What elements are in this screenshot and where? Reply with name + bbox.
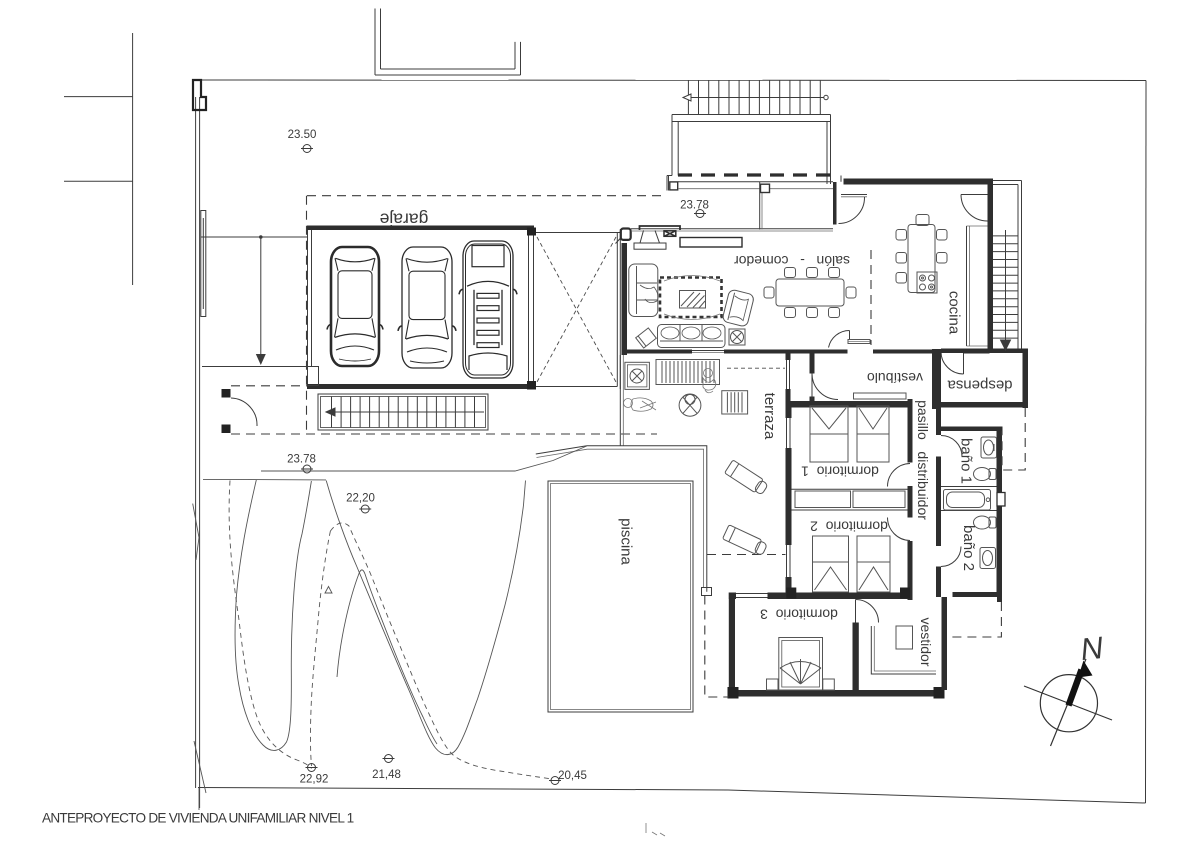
svg-text:22,92: 22,92 — [300, 774, 329, 786]
svg-text:pasillo distribuidor: pasillo distribuidor — [915, 400, 931, 520]
svg-text:20,45: 20,45 — [558, 770, 587, 782]
svg-text:ANTEPROYECTO DE VIVIENDA UNIFA: ANTEPROYECTO DE VIVIENDA UNIFAMILIAR NIV… — [42, 811, 354, 826]
svg-text:baño 1: baño 1 — [958, 438, 975, 484]
svg-text:vestidor: vestidor — [918, 617, 934, 666]
svg-text:N: N — [1079, 630, 1106, 667]
svg-text:23.78: 23.78 — [680, 200, 709, 212]
svg-text:23.78: 23.78 — [287, 454, 316, 466]
svg-text:dormitorio 2: dormitorio 2 — [810, 519, 888, 535]
svg-text:garaje: garaje — [380, 210, 429, 230]
svg-text:despensa: despensa — [947, 377, 1013, 394]
svg-text:baño 2: baño 2 — [960, 525, 977, 571]
svg-text:terraza: terraza — [761, 393, 778, 440]
svg-text:dormitorio 3: dormitorio 3 — [760, 607, 838, 623]
svg-text:piscina: piscina — [618, 518, 635, 565]
svg-text:23.50: 23.50 — [288, 129, 317, 141]
svg-text:salón - comedor: salón - comedor — [734, 253, 850, 269]
svg-text:cocina: cocina — [946, 291, 963, 335]
svg-text:21,48: 21,48 — [372, 769, 401, 781]
svg-text:vestíbulo: vestíbulo — [867, 370, 923, 386]
svg-text:22,20: 22,20 — [346, 493, 375, 505]
svg-text:dormitorio 1: dormitorio 1 — [801, 464, 879, 480]
